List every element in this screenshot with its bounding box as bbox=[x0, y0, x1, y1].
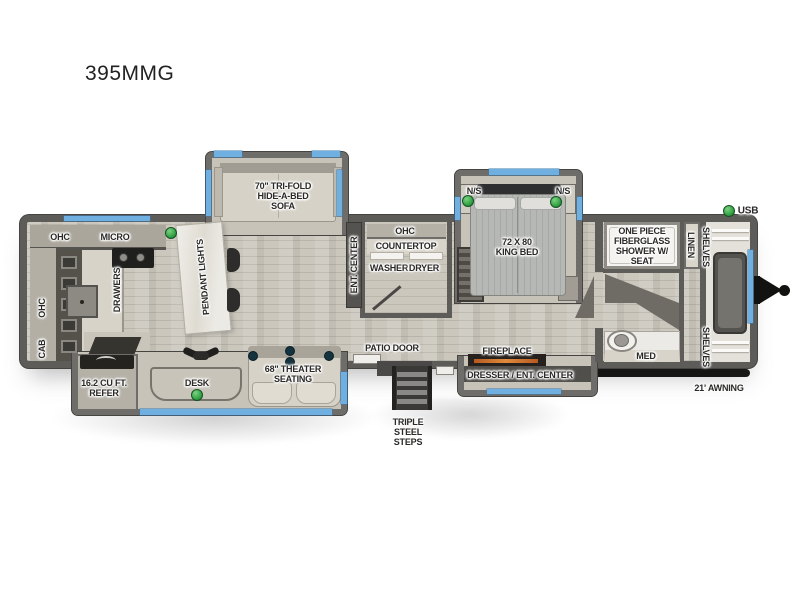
label-med: MED bbox=[636, 351, 655, 361]
shelf-line bbox=[712, 349, 749, 352]
bathroom-wall bbox=[595, 222, 603, 272]
shelf-line bbox=[712, 229, 749, 232]
theater-seat-cushion bbox=[296, 382, 336, 404]
shelf-line bbox=[712, 341, 749, 344]
step-tread bbox=[397, 390, 427, 395]
sofa-slide-window bbox=[214, 151, 242, 157]
cupholder-icon bbox=[285, 346, 295, 356]
cupholder-icon bbox=[248, 351, 258, 361]
theater-slide-window bbox=[140, 409, 332, 415]
desk-chair-icon bbox=[193, 352, 209, 360]
bathroom-wall bbox=[595, 328, 603, 362]
corner-appliance-icon bbox=[89, 337, 142, 354]
bar-stool-icon bbox=[227, 248, 240, 272]
label-patio-door: PATIO DOOR bbox=[365, 343, 419, 353]
dresser-slide-window bbox=[487, 389, 561, 394]
label-sofa: 70" TRI-FOLD HIDE-A-BED SOFA bbox=[250, 181, 316, 211]
sofa-slide-window bbox=[337, 170, 342, 216]
sink-drain-icon bbox=[80, 300, 84, 304]
label-kitchen-micro: MICRO bbox=[101, 232, 130, 242]
stove-burner-icon bbox=[136, 253, 145, 262]
floorplan-395mmg: 395MMG bbox=[0, 0, 800, 600]
label-washer: WASHER bbox=[370, 263, 408, 273]
label-shelves-bottom: SHELVES bbox=[701, 327, 711, 367]
label-kitchen-drawers: DRAWERS bbox=[112, 268, 122, 313]
sofa-slide-window bbox=[206, 170, 211, 216]
label-kitchen-ohc-rear: OHC bbox=[50, 232, 69, 242]
light-indicator-kitchen bbox=[165, 227, 177, 239]
label-countertop: COUNTERTOP bbox=[376, 241, 437, 251]
floorplan-title: 395MMG bbox=[85, 62, 174, 86]
label-linen: LINEN bbox=[686, 232, 696, 258]
shelf-line bbox=[712, 237, 749, 240]
label-triple-steel-steps: TRIPLE STEEL STEPS bbox=[387, 417, 429, 447]
stove-burner-icon bbox=[119, 253, 128, 262]
light-indicator-desk bbox=[191, 389, 203, 401]
patio-door-panel bbox=[436, 366, 454, 375]
label-shower: ONE PIECE FIBERGLASS SHOWER W/ SEAT bbox=[613, 226, 671, 266]
sofa-slide-window bbox=[312, 151, 340, 157]
sofa-armrest bbox=[214, 167, 223, 217]
sofa-back bbox=[220, 163, 336, 173]
front-cap-window bbox=[748, 250, 753, 323]
theater-slide-window bbox=[341, 372, 347, 404]
label-nightstand-right: N/S bbox=[556, 186, 570, 196]
cupholder-icon bbox=[324, 351, 334, 361]
drawer-icon bbox=[61, 340, 77, 353]
dryer-icon bbox=[409, 252, 443, 260]
awning-rail bbox=[572, 369, 750, 377]
hitch-ball-icon bbox=[779, 285, 790, 296]
bed-pillow bbox=[474, 197, 516, 210]
bed-slide-window bbox=[489, 169, 559, 175]
drawer-icon bbox=[61, 256, 77, 269]
step-tread bbox=[397, 381, 427, 386]
bed-slide-window bbox=[577, 197, 582, 220]
fireplace-flame bbox=[474, 359, 538, 363]
kitchen-window bbox=[64, 216, 150, 221]
theater-seat-cushion bbox=[252, 382, 292, 404]
bed-slide-window bbox=[455, 197, 460, 220]
label-shelves-top: SHELVES bbox=[701, 227, 711, 267]
label-fireplace: FIREPLACE bbox=[482, 346, 531, 356]
light-indicator-nightstand-left bbox=[462, 195, 474, 207]
label-theater-seating: 68" THEATER SEATING bbox=[259, 364, 327, 384]
label-dresser: DRESSER / ENT. CENTER bbox=[467, 370, 573, 380]
label-desk: DESK bbox=[185, 378, 209, 388]
label-ent-center: ENT. CENTER bbox=[349, 237, 359, 294]
label-kitchen-cab: CAB bbox=[37, 340, 47, 359]
label-awning: 21' AWNING bbox=[694, 383, 743, 393]
step-tread bbox=[397, 372, 427, 377]
label-king-bed: 72 X 80 KING BED bbox=[492, 237, 542, 257]
label-kitchen-ohc-wall: OHC bbox=[37, 298, 47, 317]
label-dryer: DRYER bbox=[409, 263, 439, 273]
label-refer: 16.2 CU FT. REFER bbox=[74, 378, 134, 398]
toilet-bowl-icon bbox=[614, 334, 629, 347]
drawer-icon bbox=[61, 319, 77, 332]
wardrobe-panel bbox=[718, 258, 742, 328]
refrigerator-hinge-icon bbox=[96, 356, 116, 365]
usb-indicator bbox=[723, 205, 735, 217]
light-indicator-nightstand-right bbox=[550, 196, 562, 208]
bar-stool-icon bbox=[227, 288, 240, 312]
label-usb: USB bbox=[738, 205, 759, 216]
step-tread bbox=[397, 399, 427, 404]
washer-icon bbox=[370, 252, 404, 260]
label-laundry-ohc: OHC bbox=[395, 226, 414, 236]
